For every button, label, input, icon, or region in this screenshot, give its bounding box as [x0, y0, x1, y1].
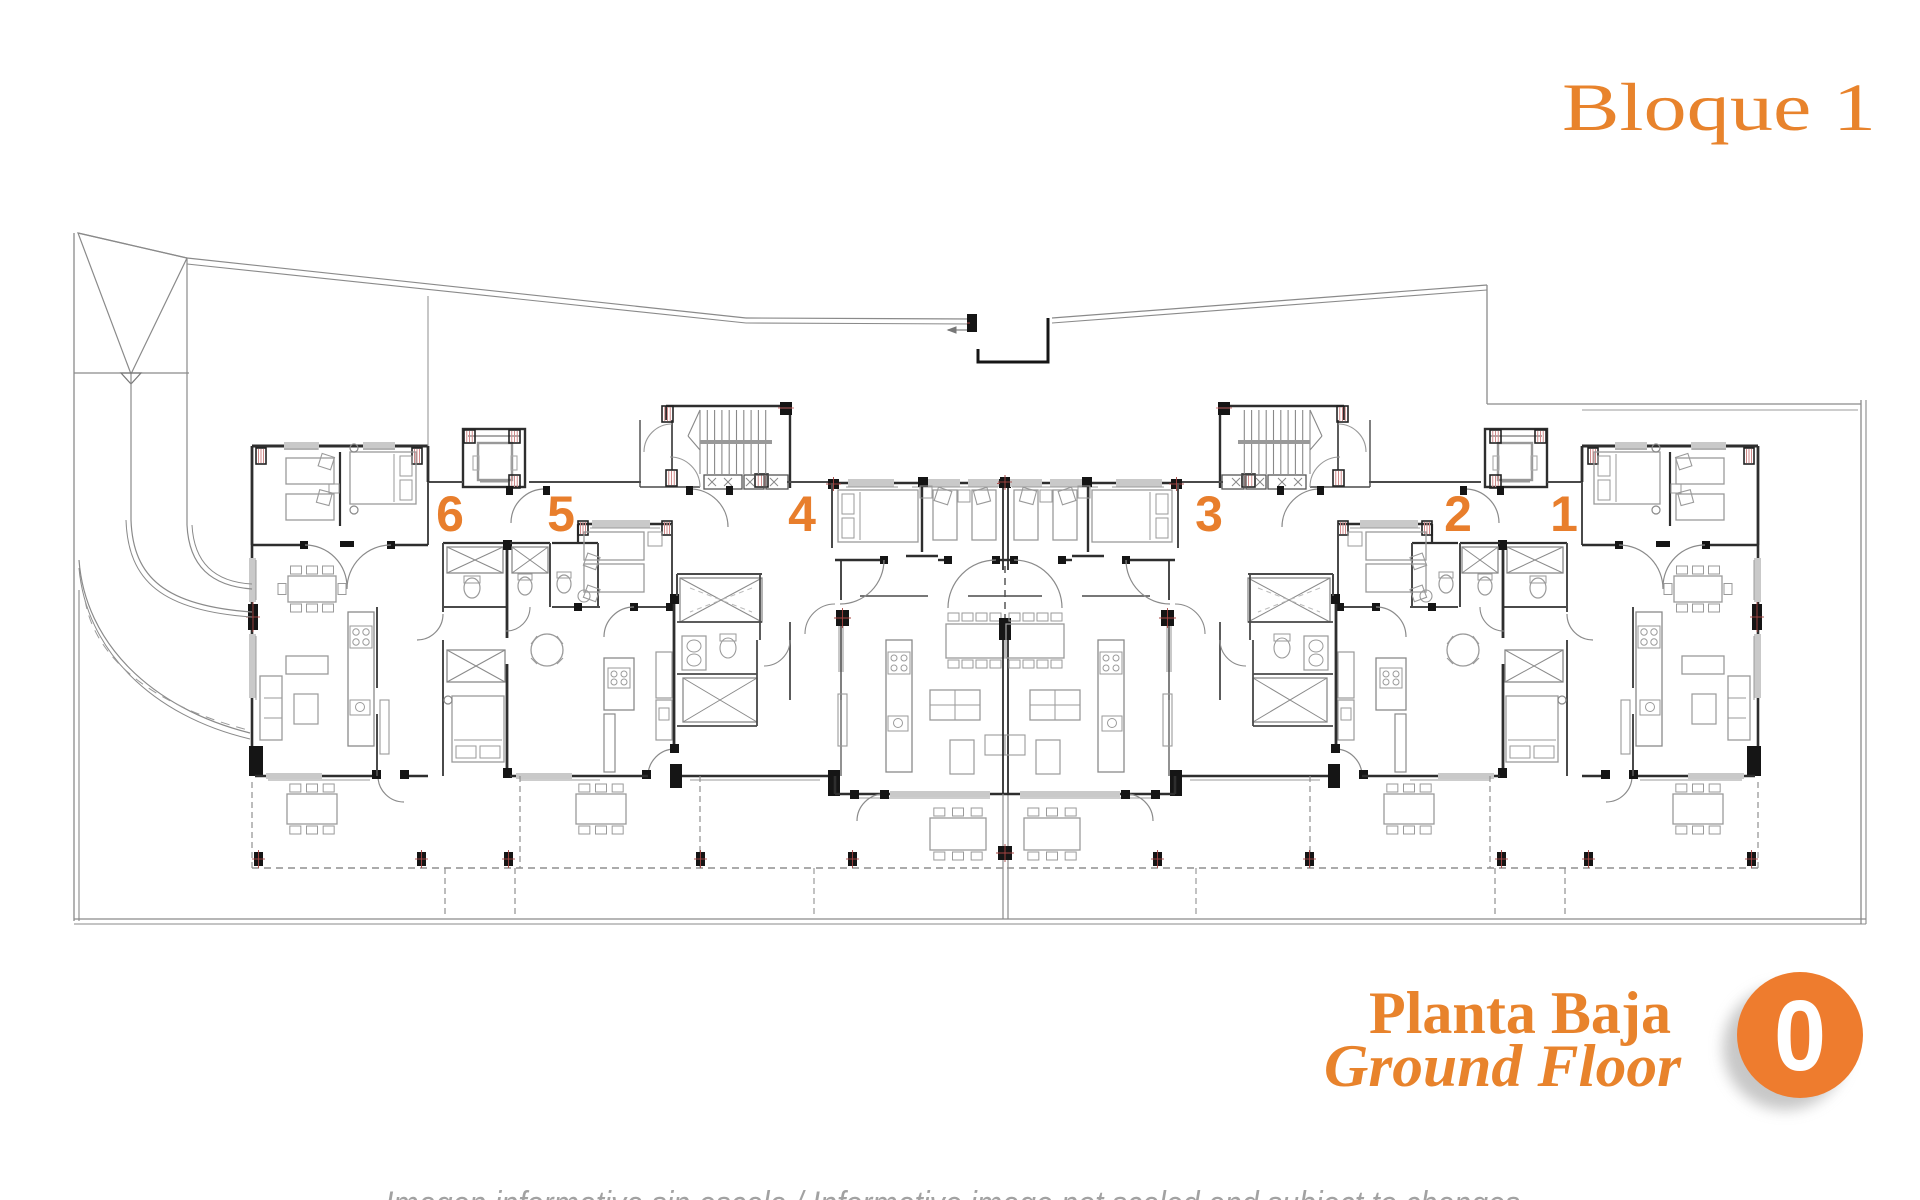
- svg-text:3: 3: [1195, 486, 1223, 542]
- svg-text:Ground Floor: Ground Floor: [1324, 1033, 1682, 1099]
- svg-text:2: 2: [1444, 486, 1472, 542]
- svg-text:4: 4: [788, 486, 816, 542]
- svg-text:Imagen informativa sin escala: Imagen informativa sin escala / Informat…: [385, 1185, 1520, 1200]
- svg-text:Bloque 1: Bloque 1: [1562, 69, 1876, 145]
- svg-text:1: 1: [1550, 486, 1578, 542]
- svg-text:5: 5: [547, 486, 575, 542]
- svg-text:6: 6: [436, 486, 464, 542]
- svg-text:0: 0: [1774, 980, 1826, 1092]
